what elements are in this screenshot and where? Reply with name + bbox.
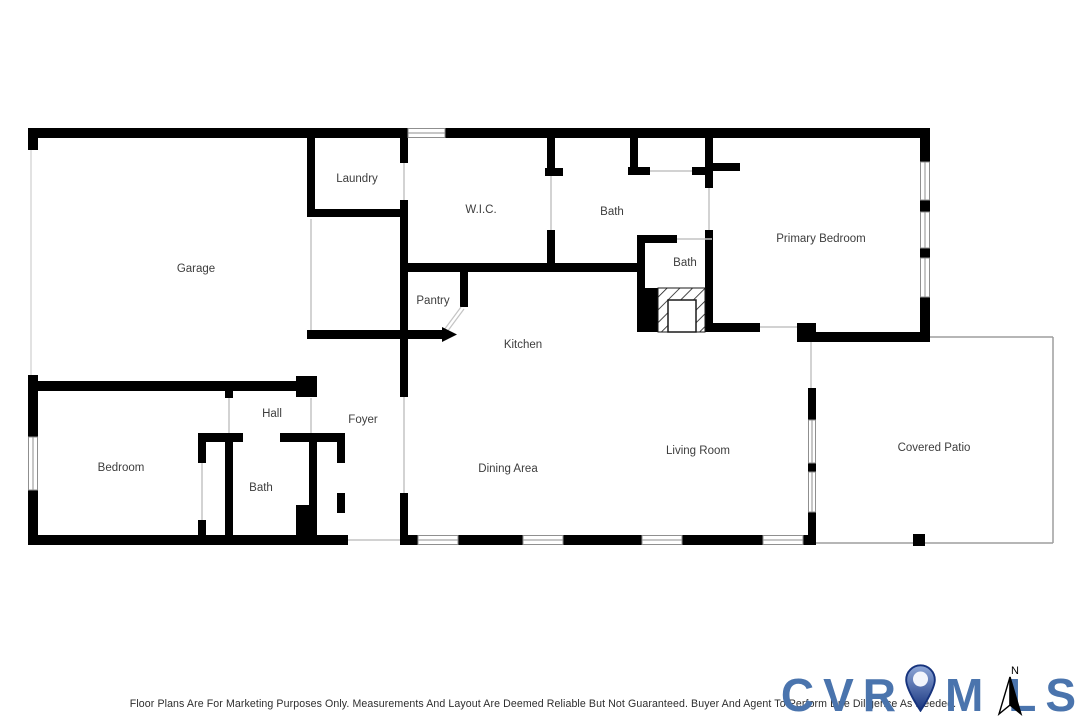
room-label-kitchen: Kitchen [504, 339, 542, 351]
floor-plan-page: Garage Laundry W.I.C. Bath Primary Bedro… [0, 0, 1086, 724]
room-label-bedroom: Bedroom [98, 462, 145, 474]
walls [28, 128, 930, 545]
room-label-pantry: Pantry [416, 295, 449, 307]
room-label-dining: Dining Area [478, 463, 538, 475]
room-label-garage: Garage [177, 263, 215, 275]
room-label-primary-bedroom: Primary Bedroom [776, 233, 865, 245]
room-label-hall: Hall [262, 408, 282, 420]
room-label-bath-middle: Bath [673, 257, 697, 269]
room-label-bath-lower: Bath [249, 482, 273, 494]
logo-letter-c: C [781, 674, 814, 718]
floor-plan: Garage Laundry W.I.C. Bath Primary Bedro… [0, 0, 1086, 724]
room-label-foyer: Foyer [348, 414, 378, 426]
logo-letter-v: V [823, 674, 854, 718]
room-label-laundry: Laundry [336, 173, 378, 185]
logo-letter-l-with-compass: L N [992, 668, 1036, 718]
room-label-wic: W.I.C. [465, 204, 496, 216]
room-label-covered-patio: Covered Patio [898, 442, 971, 454]
logo-letter-r: R [863, 674, 896, 718]
logo-letter-s: S [1045, 674, 1076, 718]
firebox [668, 300, 696, 332]
fireplace [658, 288, 705, 332]
map-pin-icon [905, 664, 936, 717]
logo-letter-m: M [945, 674, 983, 718]
windows [29, 129, 930, 545]
pantry-door [442, 307, 464, 342]
north-arrow-icon: N [994, 662, 1028, 720]
compass-north-label: N [1011, 665, 1019, 677]
room-label-living: Living Room [666, 445, 730, 457]
door-openings [31, 150, 811, 540]
room-label-bath-top: Bath [600, 206, 624, 218]
cvrmls-logo: C V R M L N S [781, 664, 1076, 718]
patio-post [913, 534, 925, 546]
